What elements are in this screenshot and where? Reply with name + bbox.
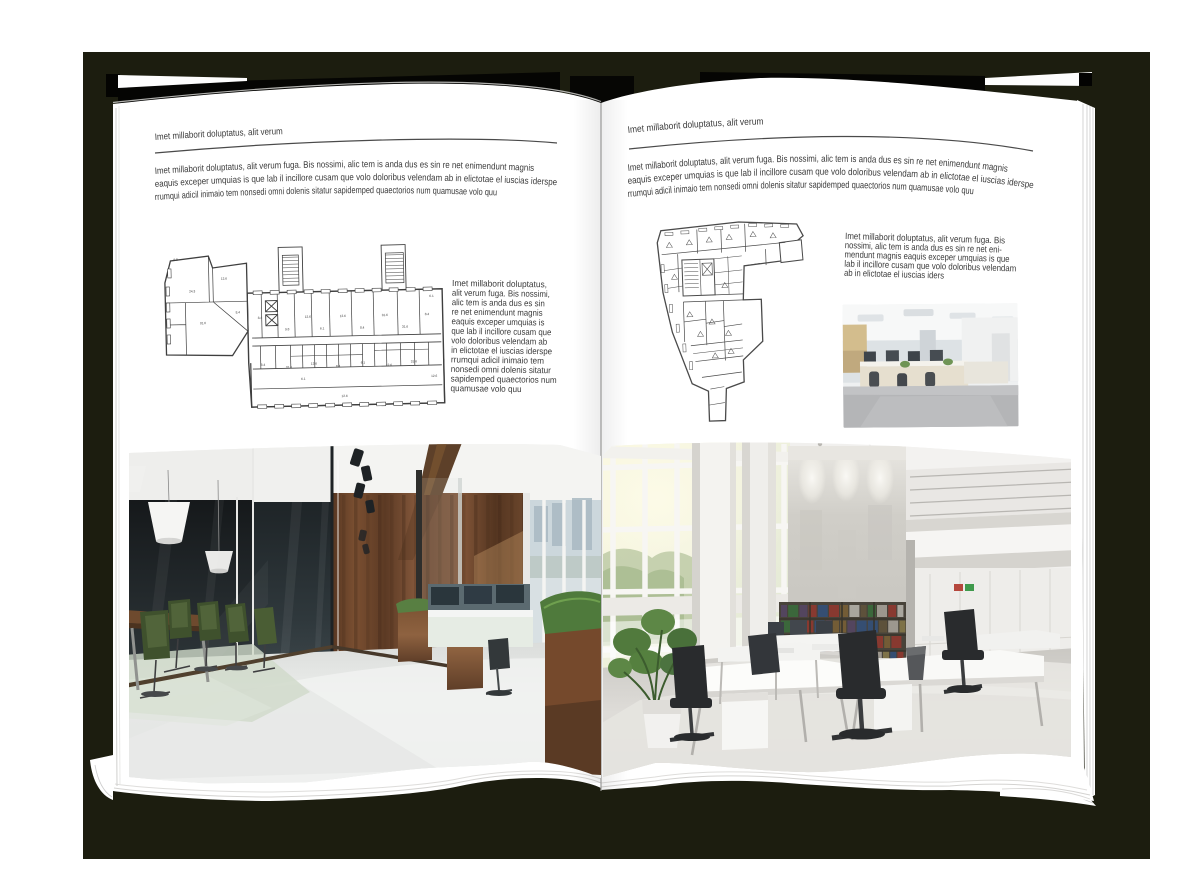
svg-text:8.4: 8.4	[425, 312, 430, 316]
svg-text:31.6: 31.6	[402, 325, 409, 329]
svg-text:12.6: 12.6	[305, 315, 312, 319]
svg-text:12.6: 12.6	[341, 394, 348, 398]
svg-text:8.4: 8.4	[261, 363, 266, 367]
svg-text:6.1: 6.1	[320, 326, 325, 330]
svg-text:12.6: 12.6	[221, 277, 228, 281]
svg-text:8.4: 8.4	[336, 364, 341, 368]
svg-text:quamusae volo quu: quamusae volo quu	[451, 383, 522, 394]
svg-text:31.6: 31.6	[382, 313, 389, 317]
svg-text:6.1: 6.1	[301, 377, 306, 381]
svg-text:9.8: 9.8	[173, 258, 178, 262]
svg-text:6.1: 6.1	[429, 294, 434, 298]
svg-text:8.4: 8.4	[258, 316, 263, 320]
svg-text:6.1: 6.1	[361, 361, 366, 365]
svg-text:31.6: 31.6	[411, 359, 418, 363]
svg-text:12.6: 12.6	[386, 363, 393, 367]
svg-text:12.6: 12.6	[431, 374, 438, 378]
svg-text:12.6: 12.6	[311, 362, 318, 366]
svg-text:9.8: 9.8	[285, 327, 290, 331]
svg-text:31.6: 31.6	[200, 321, 207, 325]
svg-text:12.6: 12.6	[340, 314, 347, 318]
svg-text:31.6: 31.6	[286, 365, 293, 369]
svg-text:24.3: 24.3	[189, 289, 196, 293]
svg-text:8.4: 8.4	[236, 310, 241, 314]
svg-text:8.4: 8.4	[360, 326, 365, 330]
